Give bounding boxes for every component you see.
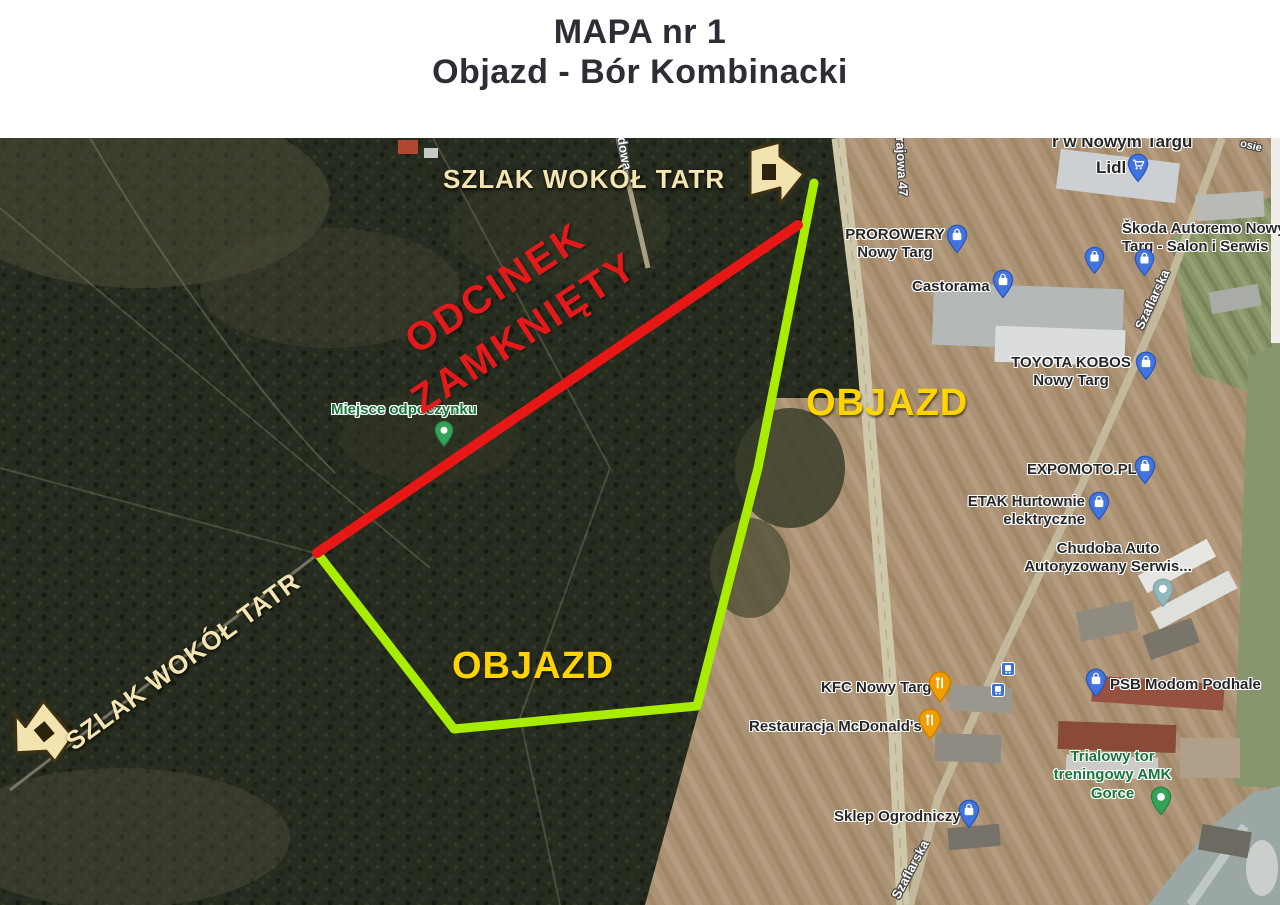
- page-title: MAPA nr 1: [0, 12, 1280, 52]
- detour-label-south: OBJAZD: [452, 645, 614, 688]
- page-subtitle: Objazd - Bór Kombinacki: [0, 52, 1280, 92]
- trail-label-top: SZLAK WOKÓŁ TATR: [443, 164, 725, 195]
- satellite-map: r w Nowym Targu Lidl Škoda Autoremo Nowy…: [0, 138, 1280, 905]
- map-title-block: MAPA nr 1 Objazd - Bór Kombinacki: [0, 0, 1280, 138]
- detour-label-east: OBJAZD: [806, 382, 968, 425]
- trail-arrow-right-icon: [750, 142, 804, 204]
